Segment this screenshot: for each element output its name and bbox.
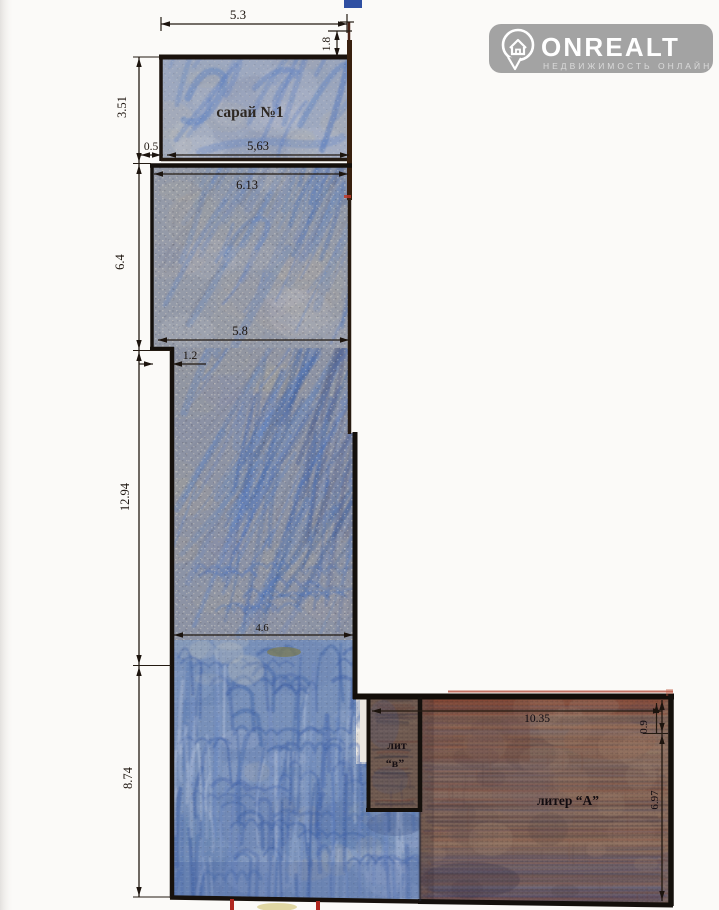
svg-text:6.97: 6.97 (649, 790, 661, 810)
svg-text:5,63: 5,63 (247, 139, 269, 153)
svg-text:5.3: 5.3 (230, 7, 246, 22)
svg-text:ONREALT: ONREALT (541, 32, 680, 62)
svg-text:сарай №1: сарай №1 (216, 104, 283, 121)
svg-text:3.51: 3.51 (115, 96, 129, 118)
svg-text:8.74: 8.74 (121, 766, 135, 789)
svg-text:6.13: 6.13 (236, 178, 258, 192)
svg-text:4.6: 4.6 (255, 623, 268, 634)
svg-text:1.2: 1.2 (183, 350, 198, 362)
svg-text:0.9: 0.9 (638, 720, 650, 734)
svg-text:лит: лит (387, 738, 407, 752)
svg-text:“в”: “в” (386, 756, 404, 770)
svg-text:6.4: 6.4 (113, 253, 127, 269)
svg-text:10.35: 10.35 (524, 713, 550, 725)
svg-text:1.8: 1.8 (321, 37, 333, 52)
svg-text:12.94: 12.94 (118, 482, 132, 511)
svg-text:литер “А”: литер “А” (537, 793, 599, 808)
svg-text:НЕДВИЖИМОСТЬ ОНЛАЙН: НЕДВИЖИМОСТЬ ОНЛАЙН (543, 60, 712, 71)
svg-text:5.8: 5.8 (232, 324, 248, 338)
svg-text:0.5: 0.5 (144, 141, 159, 153)
